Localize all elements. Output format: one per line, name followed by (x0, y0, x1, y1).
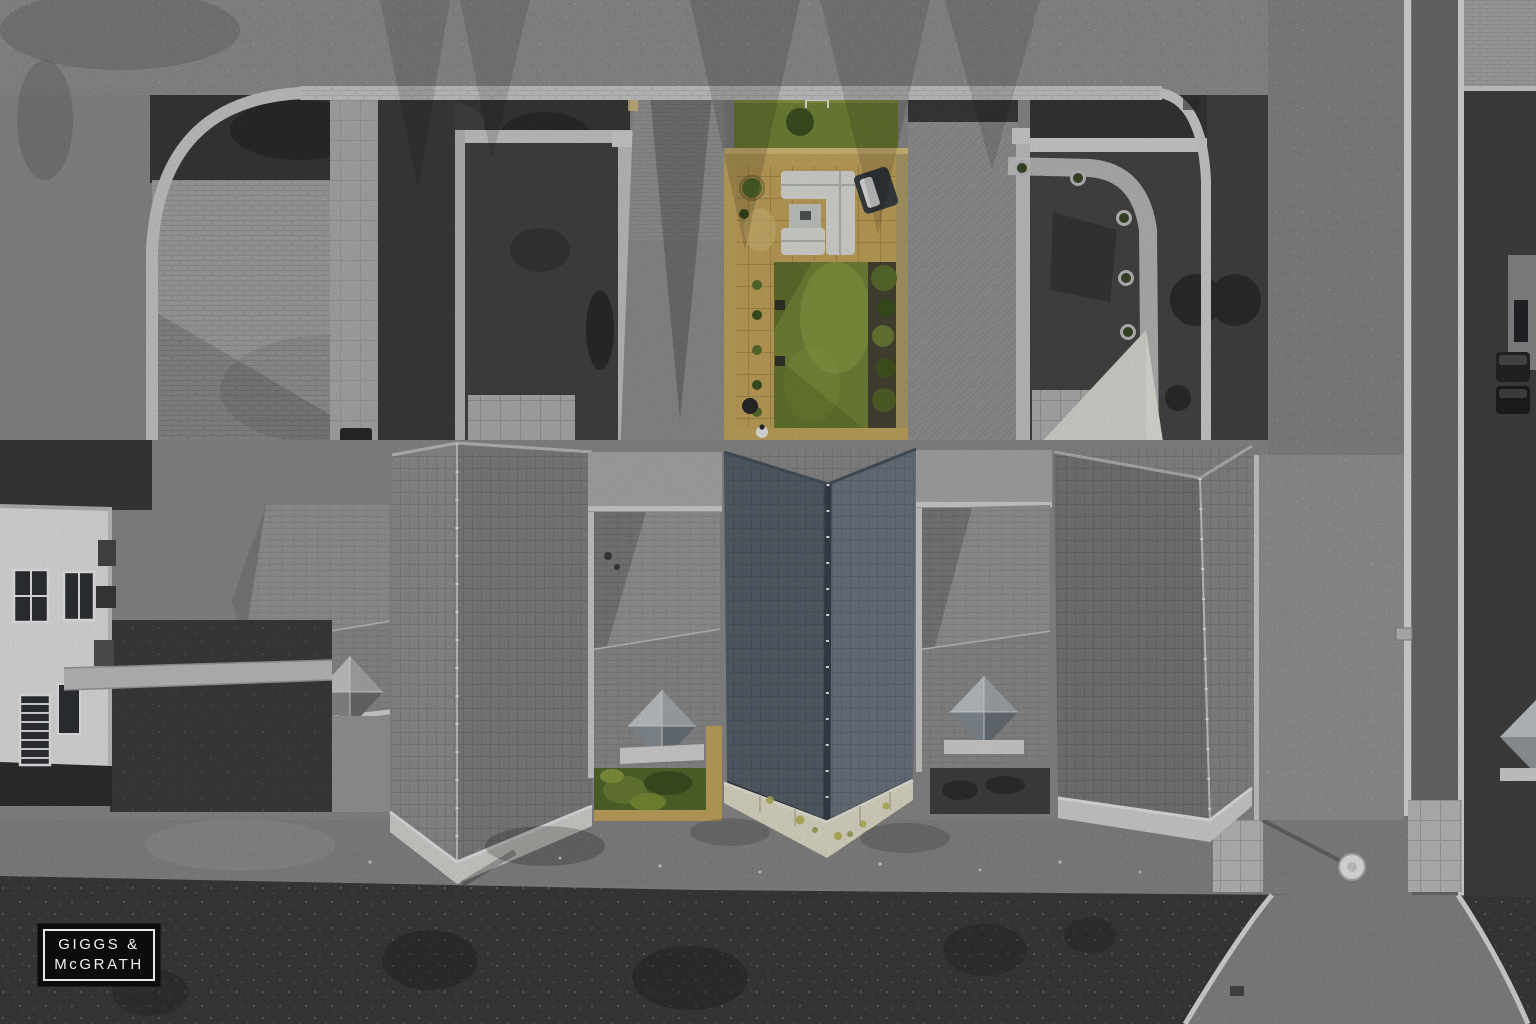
aerial-photo: GIGGS & McGRATH (0, 0, 1536, 1024)
watermark-frame: GIGGS & McGRATH (43, 929, 155, 981)
watermark-line2: McGRATH (54, 956, 144, 975)
watermark-line1: GIGGS & (58, 936, 140, 955)
film-grain (0, 0, 1536, 1024)
watermark-box: GIGGS & McGRATH (38, 924, 160, 986)
aerial-scene (0, 0, 1536, 1024)
